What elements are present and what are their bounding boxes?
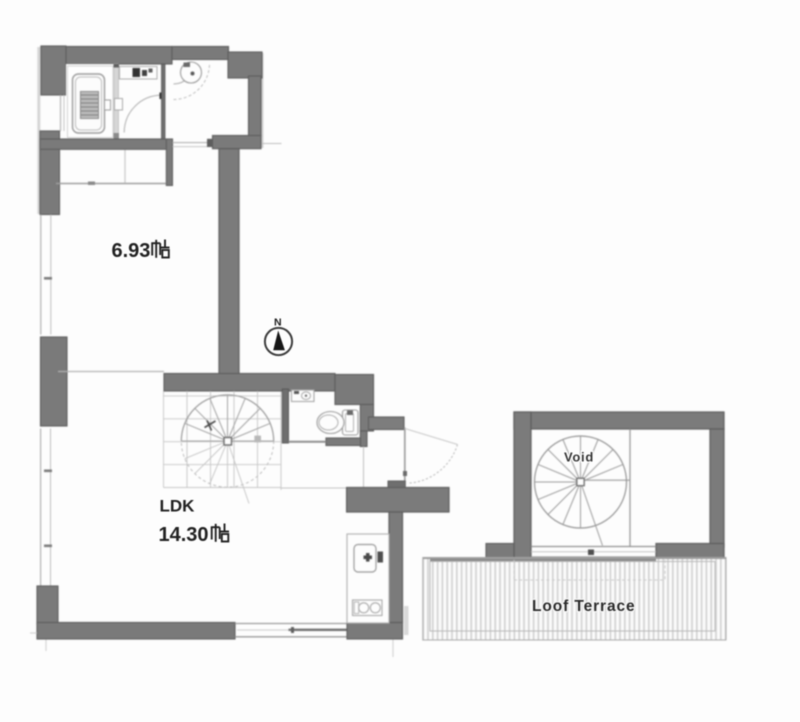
svg-text:N: N — [274, 317, 282, 329]
svg-text:Loof Terrace: Loof Terrace — [532, 598, 636, 615]
svg-text:14.30: 14.30 — [159, 524, 209, 546]
svg-text:Void: Void — [564, 450, 594, 465]
svg-text:LDK: LDK — [160, 497, 196, 516]
svg-text:6.93: 6.93 — [112, 240, 151, 262]
